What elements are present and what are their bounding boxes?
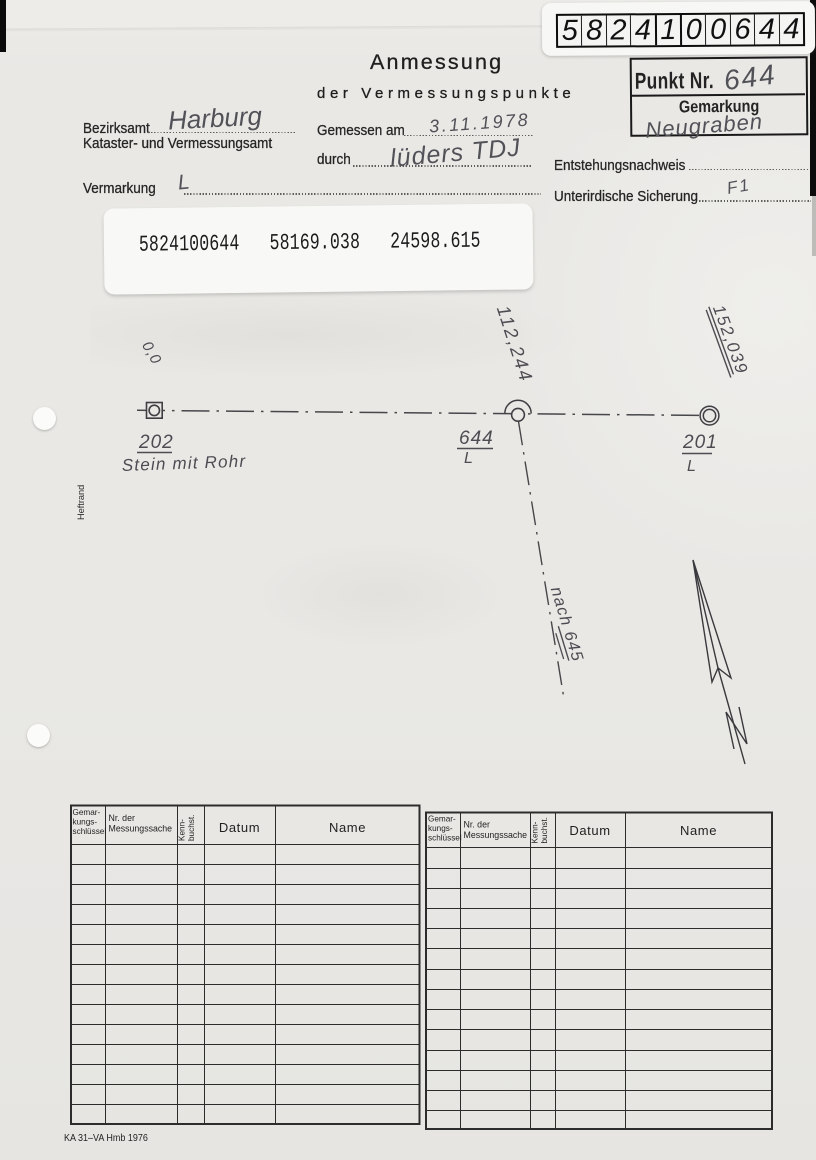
- svg-text:Kenn-: Kenn-: [178, 819, 187, 841]
- svg-text:644: 644: [459, 428, 494, 449]
- svg-text:kungs-: kungs-: [428, 824, 453, 833]
- svg-text:schlüssel: schlüssel: [428, 834, 462, 843]
- svg-text:Gemar-: Gemar-: [73, 808, 101, 817]
- svg-text:Stein mit Rohr: Stein mit Rohr: [121, 452, 246, 475]
- svg-text:Nr. der: Nr. der: [464, 820, 490, 830]
- svg-text:112,244: 112,244: [493, 303, 538, 385]
- svg-text:Gemar-: Gemar-: [428, 815, 456, 824]
- svg-text:buchst.: buchst.: [187, 815, 196, 841]
- svg-text:0,0: 0,0: [138, 339, 165, 368]
- svg-text:202: 202: [138, 432, 174, 453]
- svg-text:Nr. der: Nr. der: [109, 813, 135, 823]
- svg-text:Datum: Datum: [219, 820, 260, 835]
- svg-text:L: L: [687, 458, 696, 475]
- svg-text:schlüssel: schlüssel: [73, 827, 107, 836]
- svg-text:Messungssache: Messungssache: [109, 824, 173, 834]
- svg-text:buchst.: buchst.: [540, 817, 549, 843]
- svg-text:Name: Name: [680, 823, 717, 838]
- svg-text:L: L: [464, 450, 473, 467]
- svg-text:Messungssache: Messungssache: [464, 830, 528, 840]
- svg-text:kungs-: kungs-: [73, 818, 98, 827]
- svg-text:Name: Name: [329, 820, 366, 835]
- svg-text:Datum: Datum: [569, 823, 610, 838]
- svg-text:201: 201: [682, 432, 718, 453]
- svg-text:Kenn-: Kenn-: [531, 821, 540, 843]
